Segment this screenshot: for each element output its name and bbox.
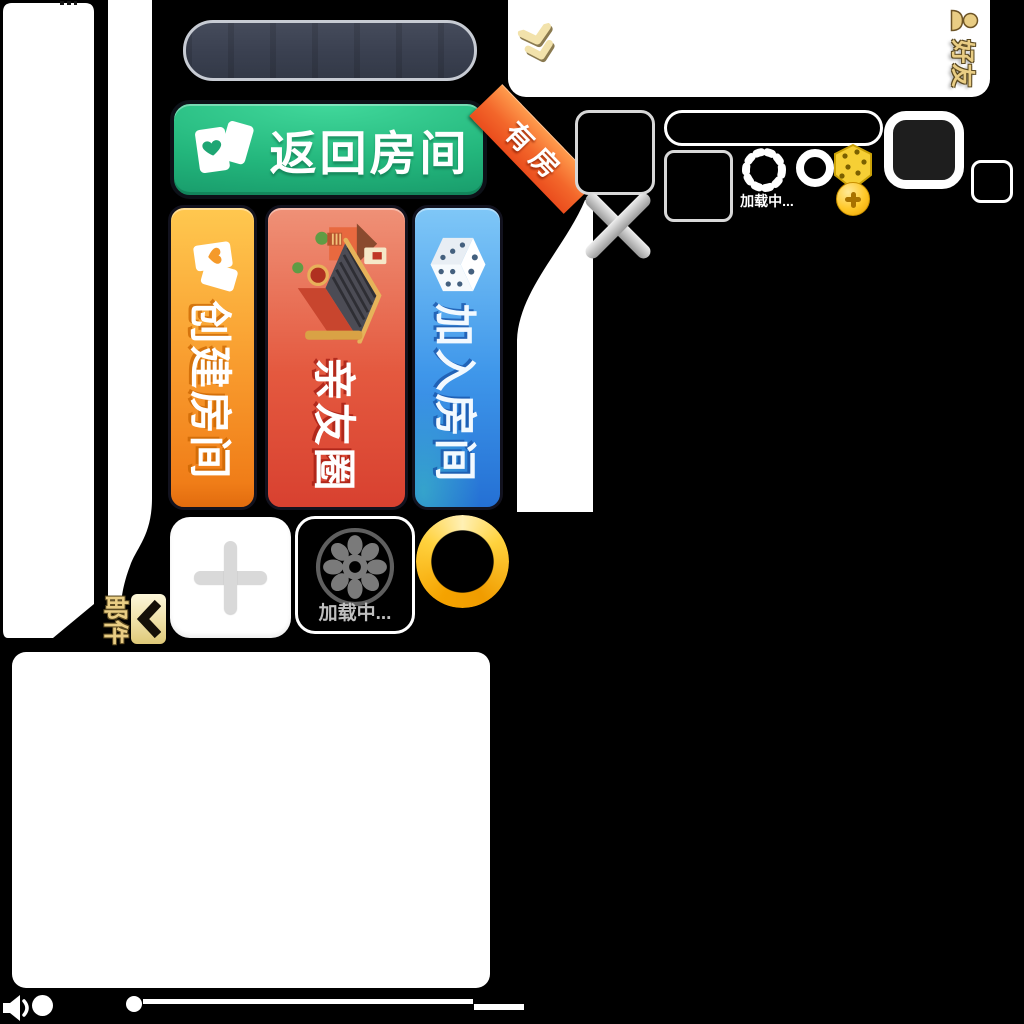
person-icon	[951, 9, 979, 33]
plus-icon	[224, 541, 237, 614]
cards-icon	[186, 235, 240, 293]
empty-slot-frame	[664, 150, 733, 222]
double-chevron-down-icon[interactable]	[517, 22, 563, 72]
courtyard-art	[283, 223, 391, 343]
return-room-label: 返回房间	[270, 115, 470, 184]
friends-circle-banner[interactable]: 亲友圈	[265, 205, 408, 510]
ribbon-label: 有房	[491, 106, 575, 191]
chevron-left-icon	[137, 599, 161, 639]
spinner-icon	[738, 144, 790, 196]
atlas-strip-left	[106, 0, 156, 606]
atlas-tick-marks	[60, 1, 77, 5]
slider-segment	[474, 1004, 524, 1010]
loading-ring-icon	[416, 515, 509, 608]
friends-panel: 好友	[508, 0, 990, 97]
add-coin-button[interactable]	[836, 182, 870, 216]
friends-tab-label: 好友	[948, 40, 983, 88]
sprite-stage: 好友 返回房间 有房 创建房间	[0, 0, 1024, 1024]
small-slot-frame	[971, 160, 1013, 203]
cards-icon	[188, 118, 256, 182]
empty-pill-frame	[664, 110, 883, 146]
mail-tab-label: 邮件	[99, 595, 135, 645]
name-plate	[183, 20, 477, 81]
mail-tab-label-wrap: 邮件	[100, 588, 134, 652]
plus-glyph	[851, 192, 856, 208]
join-room-banner[interactable]: 加入房间	[412, 205, 503, 510]
ring-icon	[796, 149, 834, 187]
avatar-frame	[884, 111, 964, 189]
content-panel	[12, 652, 490, 988]
empty-slot-frame	[575, 110, 655, 195]
return-room-button[interactable]: 返回房间	[170, 100, 487, 199]
atlas-panel-left	[0, 0, 98, 642]
loading-tile-label: 加载中...	[298, 598, 412, 625]
dice-icon	[427, 232, 489, 296]
audio-dot	[32, 995, 53, 1016]
slider-thumb[interactable]	[126, 996, 142, 1012]
add-tile-button[interactable]	[170, 517, 291, 638]
slider-track[interactable]	[143, 999, 473, 1004]
mail-collapse-button[interactable]	[131, 594, 166, 644]
join-room-label: 加入房间	[427, 303, 489, 483]
close-icon[interactable]	[581, 189, 655, 263]
friends-tab[interactable]: 好友	[942, 4, 988, 92]
speaker-icon[interactable]	[1, 992, 33, 1024]
friends-circle-label: 亲友圈	[306, 357, 368, 492]
create-room-label: 创建房间	[182, 300, 244, 480]
loading-tile: 加载中...	[295, 516, 415, 634]
spinner-flower-icon	[313, 525, 397, 609]
create-room-banner[interactable]: 创建房间	[168, 205, 257, 510]
loading-text: 加载中...	[722, 191, 812, 211]
